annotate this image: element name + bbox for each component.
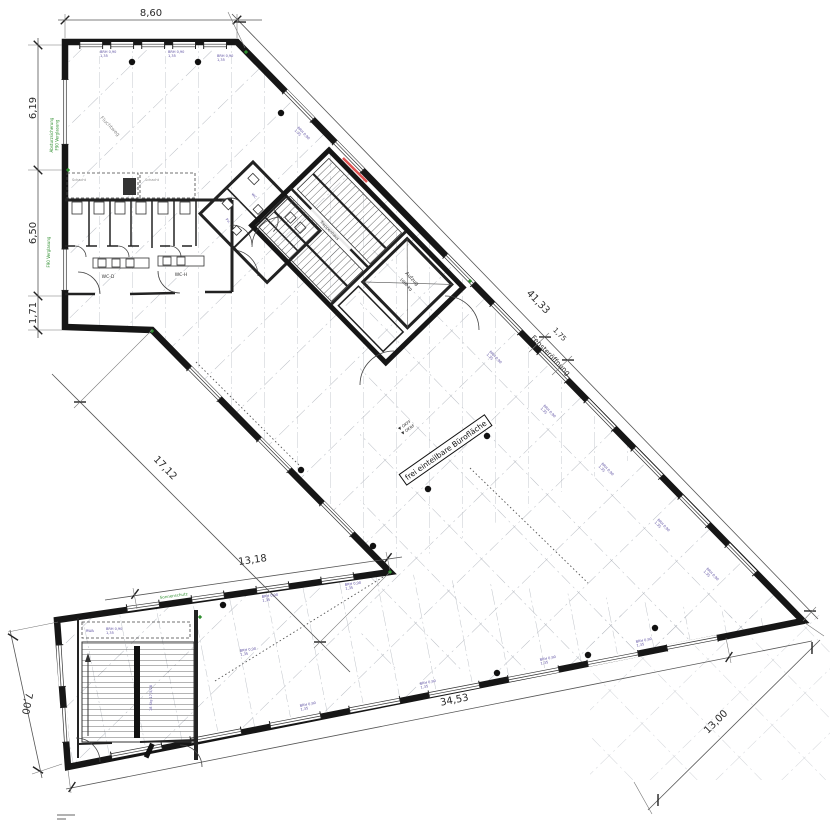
window bbox=[80, 42, 103, 49]
column bbox=[220, 602, 226, 608]
margin-mark bbox=[57, 815, 75, 819]
stair-center-rail bbox=[134, 646, 140, 738]
column bbox=[585, 652, 591, 658]
column bbox=[370, 543, 376, 549]
dim-left-upper: 6,19 bbox=[28, 97, 39, 119]
column bbox=[129, 59, 135, 65]
column bbox=[425, 486, 431, 492]
floorplan-canvas: Schacht Schacht bbox=[0, 0, 832, 825]
svg-text:Absturzsicherung: Absturzsicherung bbox=[49, 117, 54, 152]
column bbox=[652, 625, 658, 631]
dim-inner-diagonal: 17,12 bbox=[151, 454, 179, 482]
column bbox=[484, 433, 490, 439]
column bbox=[195, 59, 201, 65]
window bbox=[204, 42, 227, 49]
window bbox=[142, 42, 165, 49]
dim-inner-edge: 13,18 bbox=[238, 553, 268, 568]
dim-facade-diagonal: 41,33 bbox=[524, 288, 552, 316]
dim-left-bottom-wing: 7,00 bbox=[19, 691, 34, 715]
wc-d-label: WC-D bbox=[102, 274, 115, 280]
column bbox=[494, 670, 500, 676]
column bbox=[278, 110, 284, 116]
column bbox=[298, 467, 304, 473]
window bbox=[173, 42, 196, 49]
dim-top: 8,60 bbox=[140, 8, 162, 19]
dim-left-lower: 1,71 bbox=[28, 302, 39, 324]
dim-window-opening: 1,75 bbox=[551, 326, 568, 343]
shaft-solid bbox=[123, 178, 136, 195]
stair-note: 18 Stg 17,5/28 bbox=[149, 685, 153, 711]
svg-text:F90 Verglasung: F90 Verglasung bbox=[55, 119, 60, 150]
dim-left-middle: 6,50 bbox=[28, 222, 39, 244]
wc-h-label: WC-H bbox=[175, 272, 188, 278]
floorplan-drawing: Schacht Schacht bbox=[0, 0, 832, 825]
shaft-label-right: Schacht bbox=[145, 178, 160, 182]
svg-text:F90 Verglasung: F90 Verglasung bbox=[46, 236, 51, 267]
window bbox=[62, 249, 69, 290]
rwa-label: RWA bbox=[86, 629, 95, 633]
shaft-label-left: Schacht bbox=[72, 178, 87, 182]
window bbox=[111, 42, 134, 49]
window bbox=[62, 80, 69, 145]
